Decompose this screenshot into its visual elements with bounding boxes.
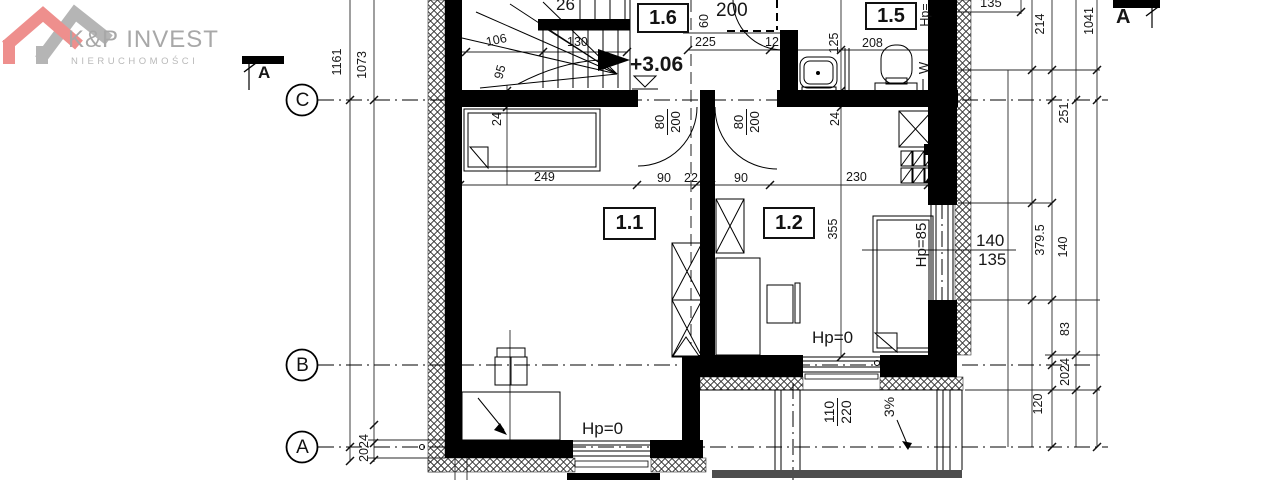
- dim-1161: 1161: [330, 34, 344, 90]
- door3-width-clipped: 80: [728, 0, 746, 2]
- grid-axis-b: B: [287, 350, 318, 381]
- dim-379-5: 379.5: [1033, 212, 1047, 268]
- door-height: 200: [667, 109, 683, 135]
- door1-size-label: 80 200: [652, 104, 682, 140]
- dim-208: 208: [862, 37, 883, 50]
- balcony-door-width: 110: [821, 399, 837, 425]
- level-symbol: [632, 76, 658, 89]
- hp0-room11: Hp=0: [582, 420, 623, 437]
- dim-230: 230: [846, 171, 867, 184]
- window-height-135: 135: [978, 251, 1006, 268]
- dim-90b: 90: [734, 172, 748, 185]
- dim-22: 22: [684, 172, 698, 185]
- room-label-11: 1.1: [603, 207, 656, 240]
- corner-triangle-icon: [673, 337, 699, 356]
- balcony-door-size: 110 220: [821, 390, 853, 434]
- room-label-15: 1.5: [865, 2, 917, 30]
- balcony-door-height: 220: [837, 398, 854, 425]
- room-number: 1.5: [877, 5, 905, 28]
- room-number: 1.6: [649, 7, 677, 30]
- stair-step-count: 26: [556, 0, 575, 13]
- door-height: 200: [746, 109, 762, 135]
- dim-2024-left: 2024: [357, 420, 371, 476]
- dim-249: 249: [534, 171, 555, 184]
- grid-axis-c: C: [287, 85, 318, 116]
- cabinet: [497, 348, 525, 357]
- door-width: 80: [652, 113, 667, 131]
- bed-fold-icon: [875, 333, 897, 352]
- balcony-slope: 3%: [882, 387, 896, 427]
- section-label-right: A: [1116, 7, 1130, 27]
- hp-top-label: Hp=: [918, 0, 932, 43]
- room-label-16: 1.6: [637, 3, 689, 33]
- dim-135-top: 135: [980, 0, 1002, 9]
- dim-2024-right: 2024: [1058, 344, 1072, 400]
- dim-125: 125: [827, 15, 841, 71]
- level-marker: +3.06: [630, 54, 683, 75]
- door2-size-label: 80 200: [731, 104, 761, 140]
- room-label-12: 1.2: [763, 207, 815, 239]
- dim-90a: 90: [657, 172, 671, 185]
- grid-axis-bubbles: [287, 85, 880, 463]
- dim-355: 355: [826, 201, 840, 257]
- grid-axis-a: A: [287, 432, 318, 463]
- dim-130: 130: [567, 36, 588, 49]
- slope-arrow-icon: [902, 441, 912, 450]
- logo-subtitle: NIERUCHOMOŚCI: [71, 57, 198, 67]
- dim-120: 120: [1031, 376, 1045, 432]
- vent-label: W: [916, 40, 930, 96]
- dim-1073: 1073: [355, 37, 369, 93]
- door-width: 80: [731, 113, 746, 131]
- mat: [462, 392, 560, 440]
- section-label-left: A: [258, 64, 270, 81]
- hp85-label: Hp=85: [914, 210, 928, 280]
- arrow-icon: [494, 423, 507, 435]
- hp0-room12: Hp=0: [812, 329, 853, 346]
- window-width-140: 140: [976, 232, 1004, 249]
- bed-fold-icon: [470, 147, 488, 168]
- chair: [767, 285, 793, 323]
- desk: [716, 258, 760, 355]
- dim-24b: 24: [828, 91, 842, 147]
- dim-251: 251: [1057, 85, 1071, 141]
- dim-12: 12: [765, 36, 779, 49]
- dim-214: 214: [1033, 0, 1047, 52]
- door3-height: 200: [716, 1, 748, 20]
- room-number: 1.1: [616, 212, 644, 235]
- dim-140-right: 140: [1056, 219, 1070, 275]
- dim-1041: 1041: [1082, 0, 1096, 49]
- room-number: 1.2: [775, 212, 803, 235]
- logo-title: K&P INVEST: [68, 28, 219, 52]
- floor-plan-canvas: K&P INVEST NIERUCHOMOŚCI A A C B A 1.6 1…: [0, 0, 1280, 480]
- dim-24a: 24: [490, 91, 504, 147]
- dim-225: 225: [695, 36, 716, 49]
